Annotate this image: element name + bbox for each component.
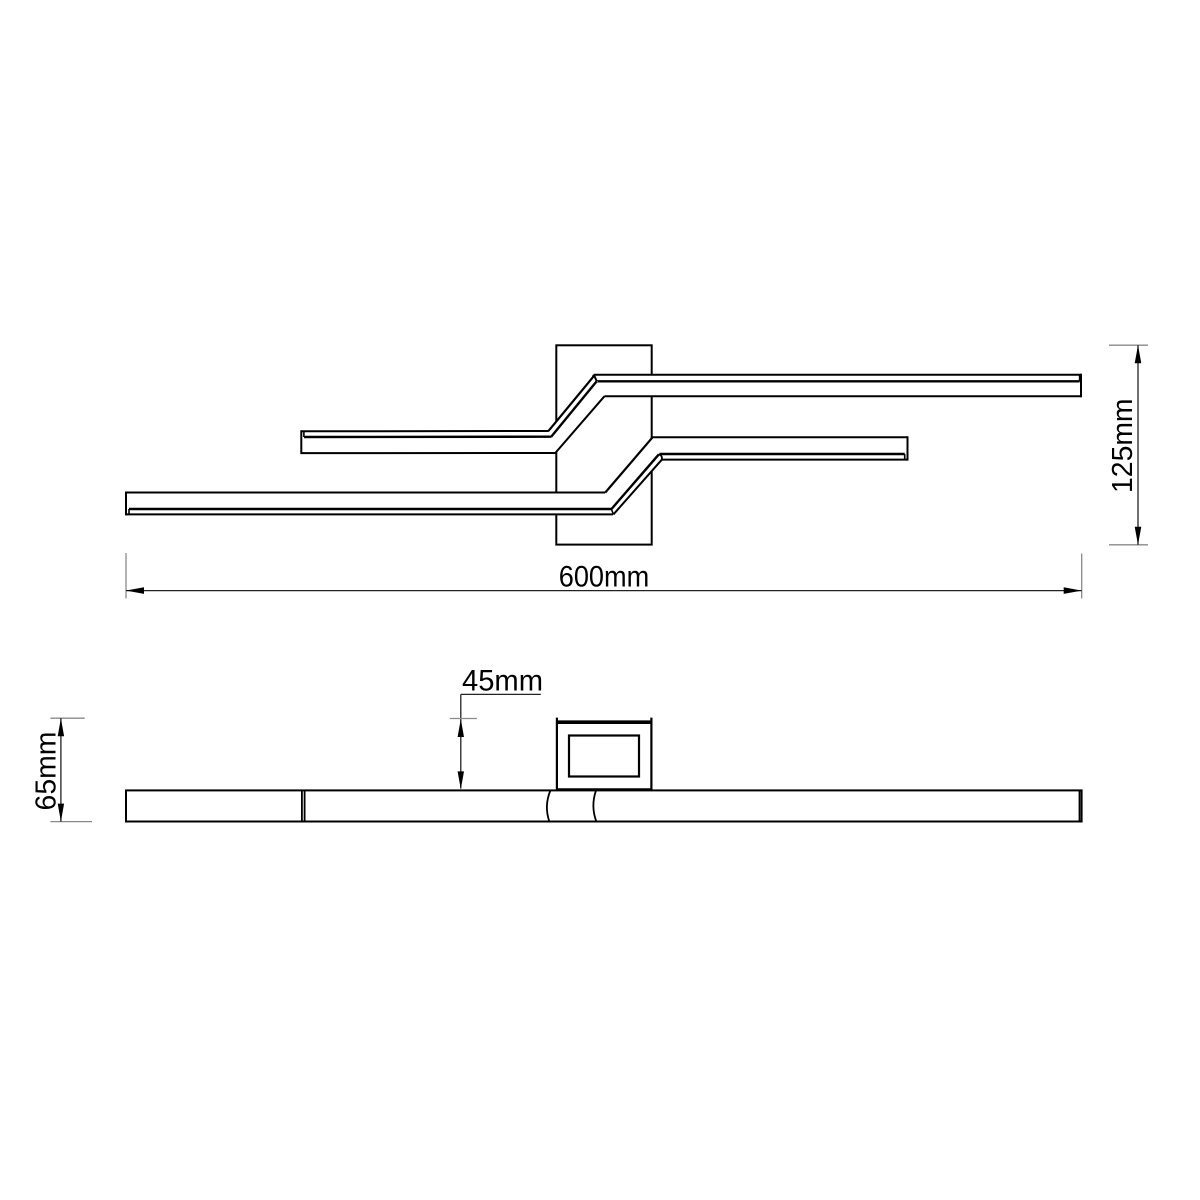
svg-text:125mm: 125mm [1107,398,1139,493]
svg-text:600mm: 600mm [559,561,650,594]
svg-text:65mm: 65mm [31,732,63,811]
svg-text:45mm: 45mm [462,665,543,698]
